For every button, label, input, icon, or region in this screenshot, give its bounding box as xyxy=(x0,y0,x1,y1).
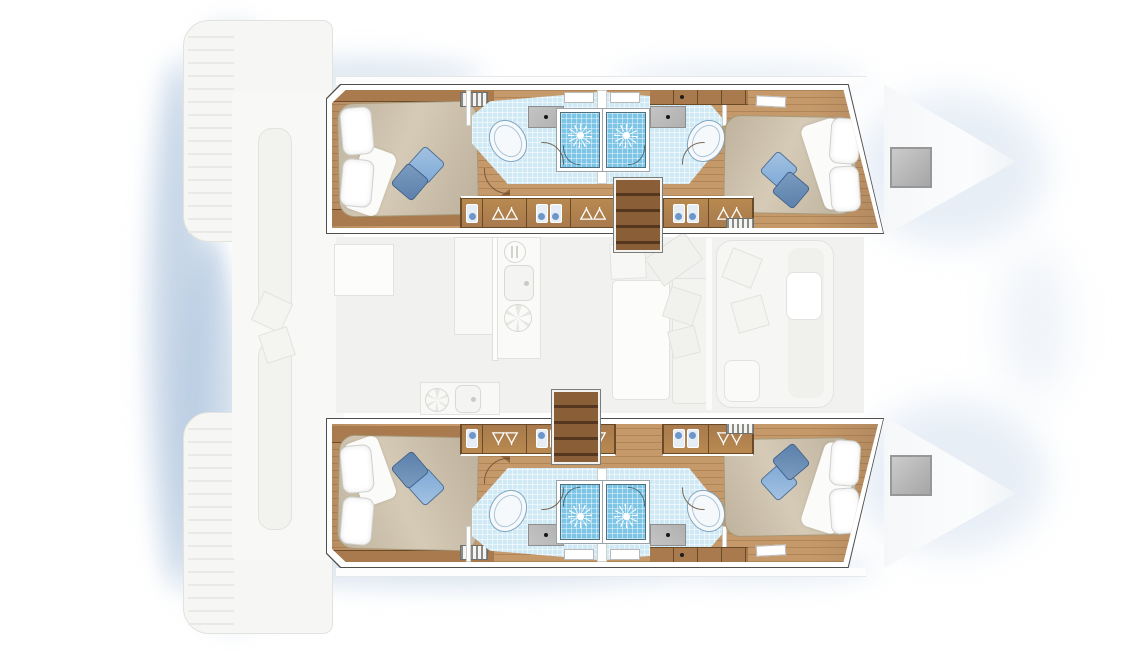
linen-locker xyxy=(664,199,708,227)
hull-window xyxy=(564,92,594,103)
hanger-icon xyxy=(490,206,520,221)
shower-stall xyxy=(606,484,646,540)
side-table xyxy=(786,272,822,320)
louver-vent-icon xyxy=(460,92,488,107)
stove-burner-icon xyxy=(425,388,449,412)
bed-pillow xyxy=(339,444,375,495)
deck-edge xyxy=(336,76,866,85)
stove-burner-icon xyxy=(504,304,532,332)
washbasin-vanity xyxy=(528,106,564,128)
linen-icon xyxy=(466,430,478,449)
starboard-hull xyxy=(326,418,888,568)
linen-icon xyxy=(673,204,685,223)
bed-pillow xyxy=(339,496,375,547)
hanger-icon xyxy=(578,206,608,221)
hull-window xyxy=(756,95,787,108)
linen-icon xyxy=(550,204,562,223)
bed-pillow xyxy=(339,158,375,209)
sofa-backrest xyxy=(788,248,824,398)
galley-sink xyxy=(504,265,534,301)
cockpit-bench xyxy=(258,342,292,530)
starboard-deck-hatch-icon xyxy=(890,455,932,496)
louver-vent-icon xyxy=(726,419,754,434)
hull-floor xyxy=(332,90,882,228)
wardrobe-shelf xyxy=(650,547,748,562)
linen-icon xyxy=(536,204,548,223)
linen-icon xyxy=(466,204,478,223)
hanging-locker xyxy=(571,199,614,227)
linen-icon xyxy=(536,430,548,449)
hull-window xyxy=(564,549,594,560)
deck-edge xyxy=(336,568,866,577)
hanger-icon xyxy=(490,432,520,447)
catamaran-floor-plan xyxy=(0,0,1140,652)
linen-locker xyxy=(527,199,570,227)
bed-pillow xyxy=(828,117,861,165)
linen-icon xyxy=(673,430,685,449)
linen-locker xyxy=(462,425,482,453)
hull-window xyxy=(610,92,640,103)
bed-pillow xyxy=(828,165,861,213)
hull-floor xyxy=(332,424,882,562)
hanging-locker xyxy=(483,425,526,453)
aft-galley-sink xyxy=(455,385,481,413)
linen-locker xyxy=(462,199,482,227)
stool xyxy=(724,360,760,402)
shower-drain-icon xyxy=(614,124,638,148)
shower-stall xyxy=(560,112,600,168)
bed-pillow xyxy=(828,487,861,535)
locker-row xyxy=(460,196,616,229)
washbasin-vanity xyxy=(650,524,686,546)
louver-vent-icon xyxy=(460,545,488,560)
louver-vent-icon xyxy=(726,218,754,233)
port-hull xyxy=(326,84,888,234)
hull-wall xyxy=(327,85,887,233)
shower-drain-icon xyxy=(568,504,592,528)
bathroom-wall xyxy=(466,90,471,126)
wardrobe-shelf xyxy=(650,90,748,105)
washbasin-vanity xyxy=(528,524,564,546)
dinette-table xyxy=(612,280,670,400)
nav-seat xyxy=(334,244,394,296)
hull-window xyxy=(756,544,787,557)
bathroom-wall xyxy=(466,526,471,562)
shower-stall xyxy=(606,112,646,168)
hull-wall xyxy=(327,419,887,567)
linen-locker xyxy=(664,425,708,453)
bed-pillow xyxy=(339,106,375,157)
salon-divider xyxy=(706,238,712,410)
shower-stall xyxy=(560,484,600,540)
port-deck-hatch-icon xyxy=(890,147,932,188)
hanging-locker xyxy=(483,199,526,227)
transom-steps xyxy=(188,419,234,625)
cutlery-icon xyxy=(504,241,526,263)
linen-icon xyxy=(687,430,699,449)
companionway-stairs xyxy=(614,178,662,252)
companionway-stairs xyxy=(552,390,600,464)
galley-counter-left xyxy=(454,237,494,335)
shower-drain-icon xyxy=(614,504,638,528)
washbasin-vanity xyxy=(650,106,686,128)
linen-icon xyxy=(687,204,699,223)
transom-steps xyxy=(188,27,234,233)
bed-pillow xyxy=(828,439,861,487)
shower-drain-icon xyxy=(568,124,592,148)
hull-window xyxy=(610,549,640,560)
cockpit-bench xyxy=(258,128,292,316)
